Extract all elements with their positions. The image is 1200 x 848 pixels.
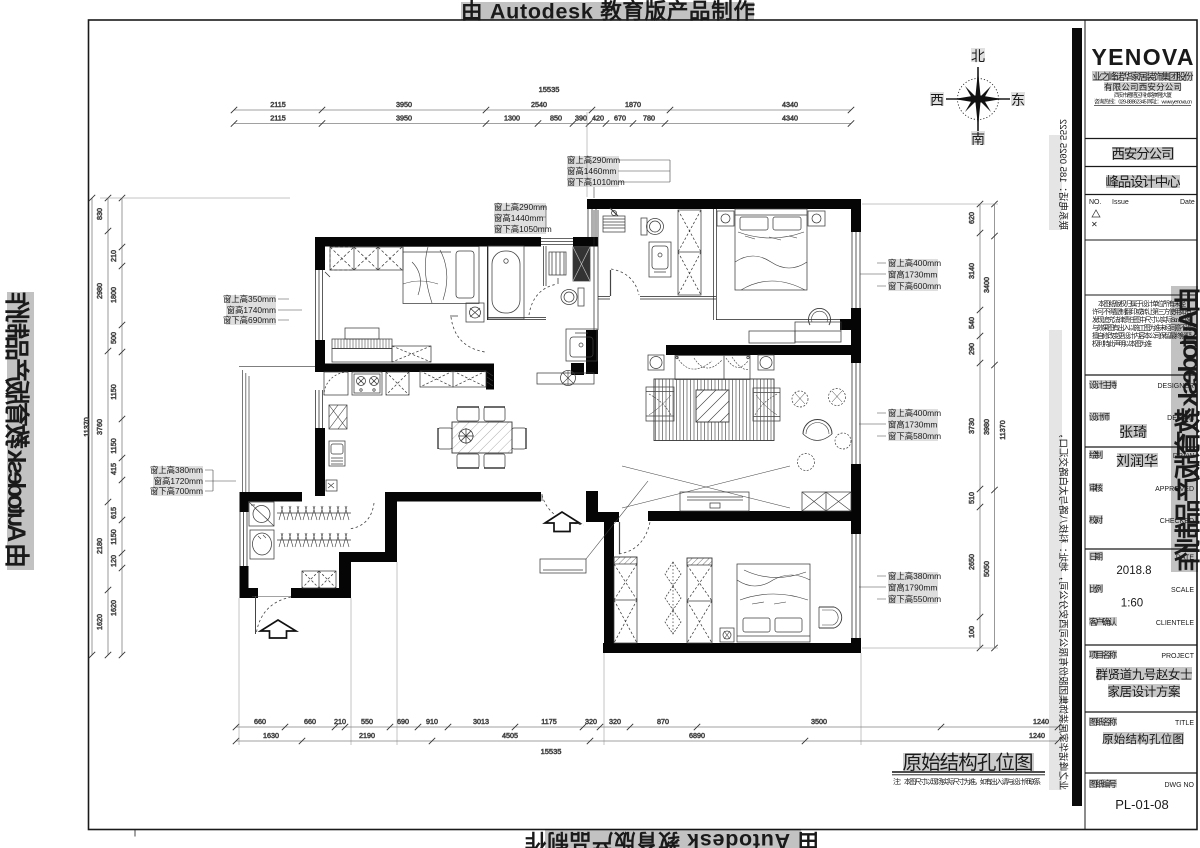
svg-text:Date: Date — [1180, 199, 1195, 206]
svg-text:4505: 4505 — [502, 731, 518, 740]
svg-text:870: 870 — [657, 717, 669, 726]
svg-text:原始结构孔位图: 原始结构孔位图 — [1102, 732, 1184, 746]
svg-text:咨询热线：029-88862345 网址：www.yenov: 咨询热线：029-88862345 网址：www.yenova.cn — [1094, 98, 1192, 106]
svg-text:窗上高350mm: 窗上高350mm — [223, 294, 276, 304]
svg-text:DATE: DATE — [1176, 555, 1194, 562]
svg-text:窗下高580mm: 窗下高580mm — [888, 431, 941, 441]
svg-text:100: 100 — [967, 626, 976, 638]
svg-text:290: 290 — [967, 343, 976, 355]
svg-text:5050: 5050 — [982, 561, 991, 577]
svg-text:日期: 日期 — [1089, 552, 1103, 562]
svg-text:CHECKED: CHECKED — [1160, 518, 1194, 525]
svg-text:窗下高700mm: 窗下高700mm — [150, 486, 203, 496]
svg-text:窗上高380mm: 窗上高380mm — [150, 465, 203, 475]
svg-text:窗高1720mm: 窗高1720mm — [154, 476, 203, 486]
svg-text:3730: 3730 — [967, 418, 976, 434]
svg-text:510: 510 — [967, 492, 976, 504]
svg-text:390: 390 — [575, 114, 587, 123]
svg-text:窗高1440mm: 窗高1440mm — [494, 213, 543, 223]
svg-text:11370: 11370 — [82, 417, 91, 436]
svg-text:YENOVA: YENOVA — [1092, 44, 1195, 70]
svg-text:PROJECT: PROJECT — [1161, 653, 1194, 660]
svg-text:窗上高290mm: 窗上高290mm — [494, 202, 547, 212]
svg-text:620: 620 — [967, 212, 976, 224]
svg-text:窗高1740mm: 窗高1740mm — [227, 305, 276, 315]
svg-text:PL-01-08: PL-01-08 — [1115, 797, 1168, 812]
svg-text:1150: 1150 — [109, 384, 118, 399]
svg-text:1:60: 1:60 — [1121, 598, 1143, 610]
svg-text:窗下高690mm: 窗下高690mm — [223, 315, 276, 325]
svg-text:210: 210 — [109, 250, 118, 262]
svg-text:审核: 审核 — [1089, 483, 1103, 493]
svg-text:客户确认: 客户确认 — [1089, 617, 1117, 627]
svg-text:图纸名称: 图纸名称 — [1089, 717, 1117, 727]
svg-text:窗上高290mm: 窗上高290mm — [567, 155, 620, 165]
svg-text:图纸编号: 图纸编号 — [1089, 779, 1117, 789]
svg-text:15535: 15535 — [539, 85, 560, 94]
svg-text:780: 780 — [643, 114, 655, 123]
svg-text:2018.8: 2018.8 — [1116, 565, 1151, 577]
svg-text:670: 670 — [614, 114, 626, 123]
svg-text:2650: 2650 — [967, 554, 976, 570]
svg-text:APPROVED: APPROVED — [1155, 486, 1194, 493]
svg-text:窗上高380mm: 窗上高380mm — [888, 571, 941, 581]
svg-text:1150: 1150 — [109, 529, 118, 544]
svg-text:Issue: Issue — [1112, 199, 1129, 206]
svg-text:690: 690 — [397, 717, 409, 726]
svg-text:210: 210 — [334, 717, 346, 726]
svg-text:DRAW: DRAW — [1173, 453, 1195, 460]
svg-text:权利 特此声明以本图为准: 权利 特此声明以本图为准 — [1092, 339, 1152, 348]
svg-text:4340: 4340 — [782, 100, 798, 109]
svg-text:660: 660 — [304, 717, 316, 726]
svg-text:校对: 校对 — [1089, 515, 1103, 525]
svg-text:660: 660 — [254, 717, 266, 726]
svg-text:南: 南 — [971, 131, 985, 147]
svg-text:西安市雁塔区科技路美隆大厦: 西安市雁塔区科技路美隆大厦 — [1114, 91, 1172, 99]
svg-text:2190: 2190 — [359, 731, 375, 740]
svg-text:1630: 1630 — [263, 731, 279, 740]
svg-text:SCALE: SCALE — [1171, 587, 1194, 594]
svg-text:北: 北 — [971, 48, 985, 64]
svg-text:2980: 2980 — [95, 283, 104, 299]
svg-text:850: 850 — [550, 114, 562, 123]
svg-text:NO.: NO. — [1089, 199, 1102, 206]
svg-text:窗高1460mm: 窗高1460mm — [567, 166, 616, 176]
svg-text:家居设计方案: 家居设计方案 — [1108, 684, 1181, 699]
svg-text:西安分公司: 西安分公司 — [1112, 147, 1175, 162]
svg-text:2180: 2180 — [95, 538, 104, 554]
svg-text:120: 120 — [109, 555, 118, 567]
svg-text:比例: 比例 — [1089, 584, 1103, 594]
svg-text:1620: 1620 — [95, 614, 104, 630]
svg-text:窗高1730mm: 窗高1730mm — [888, 270, 937, 280]
svg-text:3013: 3013 — [473, 717, 489, 726]
svg-text:3140: 3140 — [967, 263, 976, 279]
svg-text:4340: 4340 — [782, 114, 798, 123]
svg-text:窗下高600mm: 窗下高600mm — [888, 281, 941, 291]
svg-text:11370: 11370 — [998, 420, 1007, 439]
svg-text:3980: 3980 — [982, 419, 991, 435]
svg-text:320: 320 — [609, 717, 621, 726]
svg-text:刘润华: 刘润华 — [1116, 453, 1158, 469]
svg-text:设计师: 设计师 — [1089, 412, 1110, 422]
svg-text:1300: 1300 — [504, 114, 520, 123]
svg-text:注：本图尺寸以现场实际尺寸为准，如有出入请与设计师联系: 注：本图尺寸以现场实际尺寸为准，如有出入请与设计师联系 — [893, 777, 1041, 786]
svg-text:与效果图有出入以施工图为准未经同意不得: 与效果图有出入以施工图为准未经同意不得 — [1092, 323, 1192, 332]
svg-text:张琦: 张琦 — [1119, 424, 1147, 440]
svg-text:设计主持: 设计主持 — [1089, 380, 1117, 390]
svg-text:DESIGNER: DESIGNER — [1157, 383, 1194, 390]
svg-text:擅自修改变更设计内容本公司保留最终解释: 擅自修改变更设计内容本公司保留最终解释 — [1092, 331, 1192, 340]
svg-text:DWG NO: DWG NO — [1164, 782, 1194, 789]
svg-text:窗上高400mm: 窗上高400mm — [888, 258, 941, 268]
svg-text:窗下高1010mm: 窗下高1010mm — [567, 177, 625, 187]
svg-text:830: 830 — [95, 208, 104, 220]
svg-text:东: 东 — [1011, 92, 1025, 108]
svg-text:3950: 3950 — [396, 114, 412, 123]
svg-text:1620: 1620 — [109, 600, 118, 616]
svg-text:✕: ✕ — [1091, 220, 1098, 229]
svg-text:由 Autodesk 教育版产品制作: 由 Autodesk 教育版产品制作 — [461, 0, 755, 24]
svg-text:910: 910 — [426, 717, 438, 726]
svg-text:西: 西 — [930, 92, 944, 108]
svg-text:1240: 1240 — [1033, 717, 1049, 726]
svg-text:3500: 3500 — [811, 717, 827, 726]
svg-text:1175: 1175 — [541, 717, 556, 726]
svg-text:1800: 1800 — [109, 287, 118, 303]
svg-text:15535: 15535 — [541, 747, 562, 756]
svg-text:窗高1730mm: 窗高1730mm — [888, 420, 937, 430]
svg-text:1240: 1240 — [1029, 731, 1045, 740]
svg-text:发现追究法律责任图中尺寸以实际Scm为准: 发现追究法律责任图中尺寸以实际Scm为准 — [1092, 315, 1192, 324]
svg-text:320: 320 — [585, 717, 597, 726]
svg-text:415: 415 — [109, 463, 118, 475]
svg-text:业之峰诺华家居装饰集团股份有限公司西安分公司，地址：科技八路: 业之峰诺华家居装饰集团股份有限公司西安分公司，地址：科技八路与太白路交汇口， — [1057, 429, 1069, 790]
svg-text:原始结构孔位图: 原始结构孔位图 — [903, 752, 1034, 774]
svg-text:1870: 1870 — [625, 100, 641, 109]
svg-text:绘制: 绘制 — [1089, 450, 1103, 460]
svg-text:540: 540 — [967, 317, 976, 329]
svg-text:由 Autodesk 教育版产品制作: 由 Autodesk 教育版产品制作 — [2, 292, 31, 568]
svg-text:3400: 3400 — [982, 277, 991, 293]
svg-text:有限公司西安分公司: 有限公司西安分公司 — [1104, 82, 1182, 92]
svg-text:TITLE: TITLE — [1175, 720, 1194, 727]
svg-text:窗下高550mm: 窗下高550mm — [888, 594, 941, 604]
svg-text:6890: 6890 — [689, 731, 705, 740]
svg-text:项目名称: 项目名称 — [1089, 650, 1117, 660]
svg-text:窗下高1050mm: 窗下高1050mm — [494, 224, 552, 234]
svg-text:2115: 2115 — [270, 114, 285, 123]
svg-text:群贤道九号赵女士: 群贤道九号赵女士 — [1096, 667, 1193, 682]
svg-text:615: 615 — [109, 507, 118, 519]
svg-text:2540: 2540 — [531, 100, 547, 109]
svg-text:本图纸版权归属于设计单位所有未经: 本图纸版权归属于设计单位所有未经 — [1098, 299, 1186, 308]
svg-text:由 Autodesk 教育版产品制作: 由 Autodesk 教育版产品制作 — [525, 829, 819, 848]
svg-text:550: 550 — [361, 717, 373, 726]
svg-text:500: 500 — [109, 332, 118, 344]
svg-text:420: 420 — [592, 114, 604, 123]
svg-text:峰品设计中心: 峰品设计中心 — [1106, 175, 1182, 190]
svg-text:窗高1790mm: 窗高1790mm — [888, 583, 937, 593]
svg-text:2115: 2115 — [270, 100, 285, 109]
svg-text:联系电话：185 0925 5522: 联系电话：185 0925 5522 — [1057, 119, 1069, 230]
svg-text:1150: 1150 — [109, 438, 118, 453]
svg-text:CLIENTELE: CLIENTELE — [1156, 620, 1194, 627]
svg-text:3950: 3950 — [396, 100, 412, 109]
svg-text:3760: 3760 — [95, 419, 104, 435]
svg-text:窗上高400mm: 窗上高400mm — [888, 408, 941, 418]
svg-text:许可不得复制翻印或转让第三方使用如有: 许可不得复制翻印或转让第三方使用如有 — [1092, 307, 1192, 316]
svg-text:DESIGN: DESIGN — [1167, 415, 1194, 422]
